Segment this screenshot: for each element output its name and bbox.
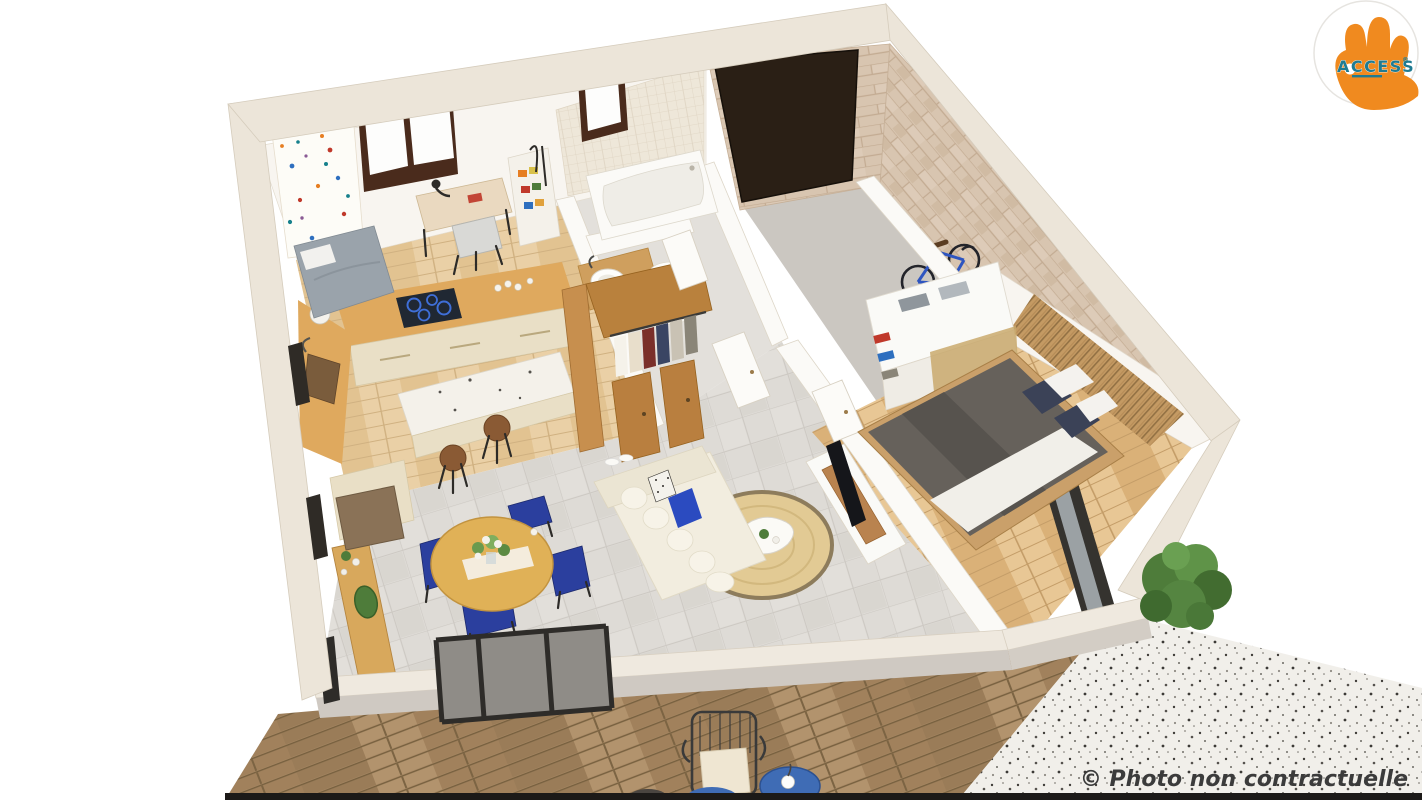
slippers bbox=[605, 459, 619, 466]
slippers-2 bbox=[619, 455, 633, 462]
bottom-edge-strip bbox=[225, 793, 1422, 800]
doormat bbox=[336, 486, 404, 550]
watermark-text: © Photo non contractuelle bbox=[1080, 767, 1408, 792]
logo-underline bbox=[1352, 75, 1382, 77]
sliding-glass-door bbox=[436, 626, 612, 722]
floorplan-render: © Photo non contractuelle ACCESS ® bbox=[0, 0, 1422, 800]
logo-registered-mark: ® bbox=[1402, 56, 1409, 64]
